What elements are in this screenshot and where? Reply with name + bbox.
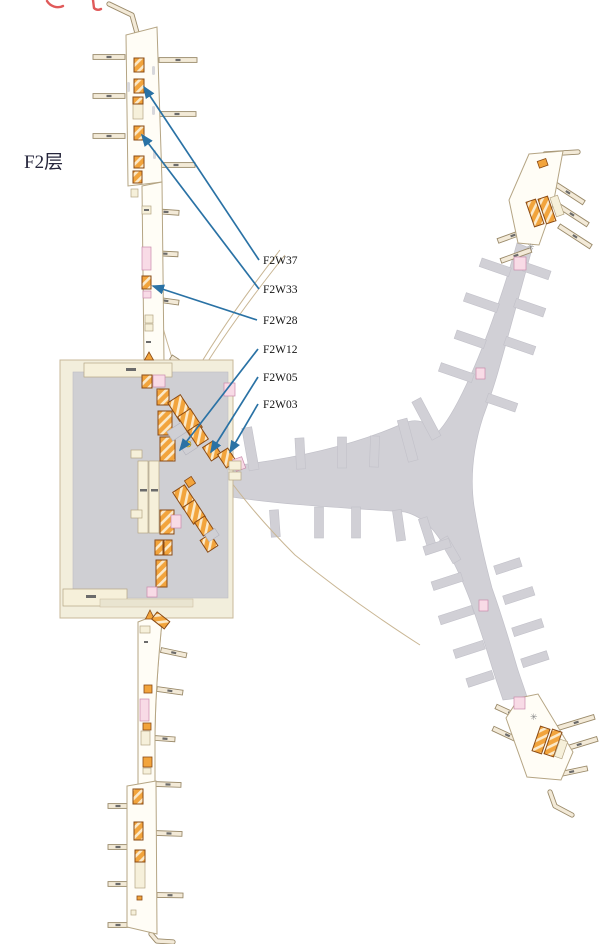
annotation-label-f2w28: F2W28 — [263, 315, 298, 327]
annotation-label-f2w33: F2W33 — [263, 284, 298, 296]
annotation-labels: F2W37 F2W33 F2W28 F2W12 F2W05 F2W03 — [263, 255, 298, 411]
fan-icon: ✳ — [530, 713, 538, 723]
annotation-label-f2w37: F2W37 — [263, 255, 298, 267]
partial-red-title — [47, 0, 101, 10]
terminal-map-canvas: ✳ ✳ — [0, 0, 600, 944]
annotation-label-f2w12: F2W12 — [263, 344, 298, 356]
terminal-map: ✳ ✳ — [0, 0, 600, 944]
annotation-label-f2w05: F2W05 — [263, 372, 298, 384]
annotation-label-f2w03: F2W03 — [263, 399, 298, 411]
floor-label: F2层 — [24, 152, 63, 173]
concourse-y — [232, 243, 551, 700]
fan-icon: ✳ — [527, 243, 535, 253]
